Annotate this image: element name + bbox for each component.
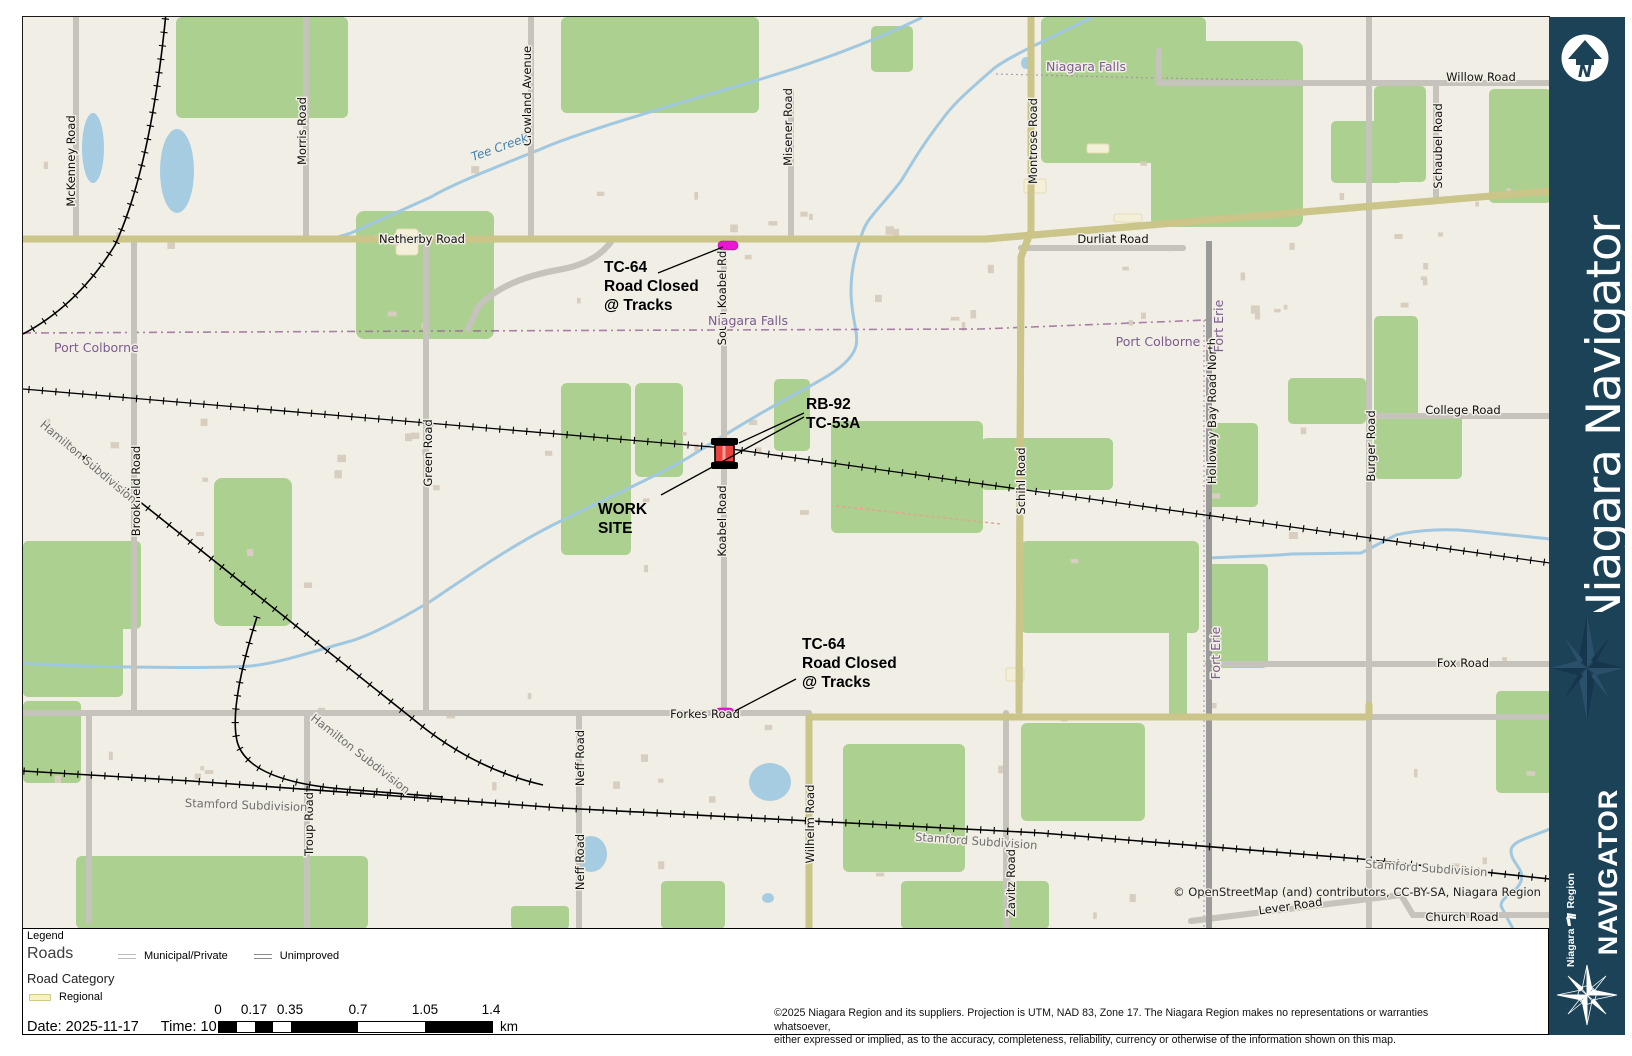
scalebar-tick: 0.35: [277, 1002, 303, 1017]
scalebar-unit: km: [500, 1019, 518, 1034]
road-closed-marker-north: [718, 241, 738, 250]
annotation-closure-south: TC-64Road Closed@ Tracks: [802, 636, 897, 691]
map-label: Schihl Road: [1014, 447, 1028, 514]
map-label: Zavitz Road: [1004, 849, 1018, 917]
legend-swatch-municipal: [118, 954, 136, 959]
map-label: Green Road: [421, 419, 435, 486]
map-label: Koabel Road: [715, 485, 729, 556]
legend-swatch-regional: [29, 994, 51, 1001]
legend-roads-heading: Roads: [27, 945, 73, 963]
map-label: Forkes Road: [670, 707, 740, 721]
map-label: Fort Erie: [1211, 299, 1226, 352]
copyright-line2: either expressed or implied, as to the a…: [774, 1034, 1474, 1048]
worksite-icon: [711, 438, 738, 469]
legend-category-items: Regional: [29, 991, 128, 1003]
scalebar-segment: [358, 1022, 425, 1032]
legend-road-items: Municipal/PrivateUnimproved: [118, 950, 365, 962]
copyright-disclaimer: ©2025 Niagara Region and its suppliers. …: [774, 1007, 1474, 1048]
navigator-label: NAVIGATOR: [1591, 775, 1625, 969]
map-label: Schaubel Road: [1431, 103, 1445, 188]
map-label: Montrose Road: [1026, 98, 1040, 184]
map-label: College Road: [1425, 403, 1500, 417]
map-label: Burger Road: [1364, 410, 1378, 481]
map-label: Willow Road: [1446, 70, 1516, 84]
map-label: Niagara Falls: [1046, 59, 1126, 74]
scalebar-segment: [291, 1022, 358, 1032]
brand-text: Niagara Navigator: [1581, 215, 1627, 612]
north-arrow-logo-icon: N: [1561, 34, 1609, 82]
scalebar-segment: [237, 1022, 255, 1032]
scalebar: [218, 1021, 493, 1033]
map-label: Fox Road: [1437, 656, 1489, 670]
legend-swatch-unimproved: [254, 954, 272, 959]
navigator-text: NAVIGATOR: [1593, 789, 1624, 956]
legend-item-unimproved: Unimproved: [254, 950, 339, 962]
osm-attribution: © OpenStreetMap (and) contributors, CC-B…: [1173, 885, 1541, 899]
legend-label: Regional: [59, 991, 102, 1003]
region-flag-icon: [1566, 912, 1577, 926]
map-label: Hamilton Subdivision: [37, 417, 139, 506]
closure-south-leader: [735, 679, 796, 711]
niagara-region-logo: Niagara Region: [1555, 863, 1587, 977]
legend-label: Unimproved: [280, 950, 339, 962]
niagara-navigator-map-export: McKenney RoadMorris RoadCrowland AvenueM…: [0, 0, 1632, 1056]
map-label: Holloway Bay Road North: [1205, 338, 1219, 484]
map-label: Port Colborne: [1116, 334, 1201, 349]
legend-panel: Legend Roads Municipal/PrivateUnimproved…: [22, 928, 1549, 1035]
map-label: Wilhelm Road: [803, 785, 817, 864]
map-label: Durliat Road: [1077, 232, 1148, 246]
scalebar-tick: 0: [214, 1002, 222, 1017]
map-label: Fort Erie: [1208, 626, 1223, 679]
map-label: Netherby Road: [379, 232, 465, 246]
region-logo-line2: Region: [1565, 873, 1577, 909]
branding-sidebar: N Niagara Navigator NAVIGATOR Niagara: [1549, 17, 1625, 1035]
map-label: Misener Road: [781, 88, 795, 166]
map-canvas[interactable]: McKenney RoadMorris RoadCrowland AvenueM…: [22, 16, 1550, 930]
scalebar-segment: [255, 1022, 273, 1032]
scalebar-tick: 0.7: [349, 1002, 368, 1017]
legend-item-municipal: Municipal/Private: [118, 950, 228, 962]
compass-rose-watermark-icon: [1550, 613, 1624, 723]
map-label: Church Road: [1425, 910, 1498, 924]
annotation-worksite-ids: RB-92TC-53A: [806, 396, 860, 432]
scalebar-tick: 0.17: [241, 1002, 267, 1017]
map-label: Stamford Subdivision: [1365, 857, 1488, 880]
map-label: Morris Road: [295, 97, 309, 165]
legend-item-regional: Regional: [29, 991, 102, 1003]
region-logo-line1: Niagara: [1565, 929, 1577, 968]
legend-road-category-heading: Road Category: [27, 971, 114, 986]
map-label: Port Colborne: [54, 340, 139, 355]
map-label: Neff Road: [573, 730, 587, 786]
scalebar-tick: 1.05: [412, 1002, 438, 1017]
map-label: Stamford Subdivision: [185, 796, 308, 814]
closure-north-leader: [658, 247, 723, 273]
copyright-line1: ©2025 Niagara Region and its suppliers. …: [774, 1007, 1474, 1034]
map-label: Niagara Falls: [708, 313, 788, 328]
compass-rose-outline-icon: [1555, 963, 1619, 1027]
legend-label: Municipal/Private: [144, 950, 228, 962]
map-label: McKenney Road: [64, 115, 78, 206]
scalebar-segment: [273, 1022, 291, 1032]
map-drawing: McKenney RoadMorris RoadCrowland AvenueM…: [23, 17, 1549, 929]
scalebar-tick: 1.4: [482, 1002, 501, 1017]
scalebar-segment: [425, 1022, 492, 1032]
export-date: Date: 2025-11-17: [27, 1019, 139, 1035]
legend-title: Legend: [27, 930, 64, 942]
svg-text:N: N: [1578, 62, 1592, 82]
map-label: South Koabel Rd: [715, 251, 729, 346]
brand-wordmark: Niagara Navigator: [1581, 215, 1627, 612]
map-label: Neff Road: [573, 834, 587, 890]
annotation-closure-north: TC-64Road Closed@ Tracks: [604, 259, 699, 314]
scalebar-segment: [219, 1022, 237, 1032]
